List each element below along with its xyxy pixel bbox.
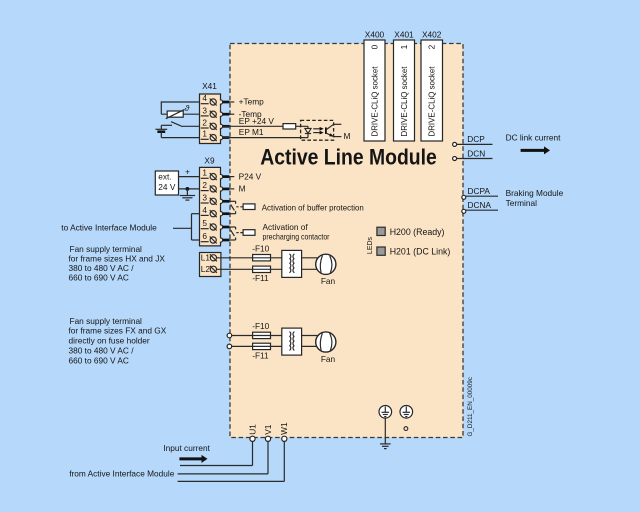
svg-text:2: 2 [202,117,207,127]
svg-text:5: 5 [202,218,207,228]
svg-text:ext.: ext. [158,172,171,182]
svg-text:X41: X41 [202,81,217,91]
svg-text:Terminal: Terminal [506,198,538,208]
svg-text:+: + [185,166,190,176]
svg-text:ϑ: ϑ [185,103,190,113]
svg-text:EP M1: EP M1 [239,127,264,137]
svg-text:0: 0 [369,44,379,49]
svg-text:Braking Module: Braking Module [506,188,564,198]
svg-text:to Active Interface Module: to Active Interface Module [61,223,157,233]
svg-text:LEDs: LEDs [367,236,374,254]
svg-text:for frame sizes HX and JX: for frame sizes HX and JX [69,253,166,263]
svg-text:directly on fuse holder: directly on fuse holder [69,336,150,346]
svg-text:Fan: Fan [321,354,336,364]
svg-text:24 V: 24 V [158,182,176,192]
svg-text:EP +24 V: EP +24 V [239,116,275,126]
svg-text:precharging contactor: precharging contactor [263,231,330,241]
svg-text:-F10: -F10 [252,321,269,331]
svg-text:1: 1 [202,168,207,178]
svg-text:X401: X401 [394,29,414,39]
svg-text:L2: L2 [201,264,211,274]
svg-text:2: 2 [427,44,437,49]
svg-text:660 to 690 V AC: 660 to 690 V AC [69,355,129,365]
svg-text:X400: X400 [365,29,385,39]
svg-text:Fan supply terminal: Fan supply terminal [70,244,143,254]
svg-text:Fan supply terminal: Fan supply terminal [70,316,143,326]
svg-text:4: 4 [202,93,207,103]
svg-text:DCP: DCP [467,134,485,144]
svg-text:for frame sizes FX and GX: for frame sizes FX and GX [69,326,167,336]
svg-text:U1: U1 [247,424,257,435]
svg-text:-F10: -F10 [252,243,269,253]
svg-text:DRIVE-CLiQ socket: DRIVE-CLiQ socket [369,66,379,137]
svg-text:380 to 480 V AC /: 380 to 480 V AC / [69,263,135,273]
svg-text:G_D211_EN_00009c: G_D211_EN_00009c [467,377,474,436]
svg-text:P24 V: P24 V [239,171,262,181]
svg-text:W1: W1 [279,422,289,435]
svg-text:380 to 480 V AC /: 380 to 480 V AC / [69,346,135,356]
svg-text:6: 6 [202,231,207,241]
svg-text:Active Line Module: Active Line Module [260,145,437,170]
svg-text:V1: V1 [263,424,273,435]
svg-text:660 to 690 V AC: 660 to 690 V AC [69,273,129,283]
svg-text:Activation of buffer protectio: Activation of buffer protection [262,202,364,212]
svg-text:DRIVE-CLiQ socket: DRIVE-CLiQ socket [427,66,437,137]
svg-text:H200 (Ready): H200 (Ready) [390,227,445,237]
svg-text:DC link current: DC link current [506,132,562,142]
svg-text:+Temp: +Temp [239,97,265,107]
svg-text:DCN: DCN [467,148,485,158]
svg-text:4: 4 [202,205,207,215]
svg-text:1: 1 [399,44,409,49]
svg-text:H201 (DC Link): H201 (DC Link) [390,247,451,257]
svg-text:1: 1 [202,129,207,139]
svg-text:M: M [239,184,246,194]
svg-text:2: 2 [202,180,207,190]
svg-text:DCPA: DCPA [468,186,491,196]
svg-text:X9: X9 [204,156,215,166]
svg-text:DRIVE-CLiQ socket: DRIVE-CLiQ socket [399,66,409,137]
svg-text:from Active Interface Module: from Active Interface Module [69,469,175,479]
svg-text:M: M [344,131,351,141]
svg-text:Input current: Input current [163,443,210,453]
svg-text:-F11: -F11 [252,273,269,283]
svg-text:Fan: Fan [321,276,336,286]
svg-text:X402: X402 [422,29,442,39]
svg-text:L1: L1 [201,253,211,263]
svg-text:-F11: -F11 [252,350,269,360]
svg-text:3: 3 [202,105,207,115]
svg-text:3: 3 [202,192,207,202]
svg-text:DCNA: DCNA [468,200,492,210]
